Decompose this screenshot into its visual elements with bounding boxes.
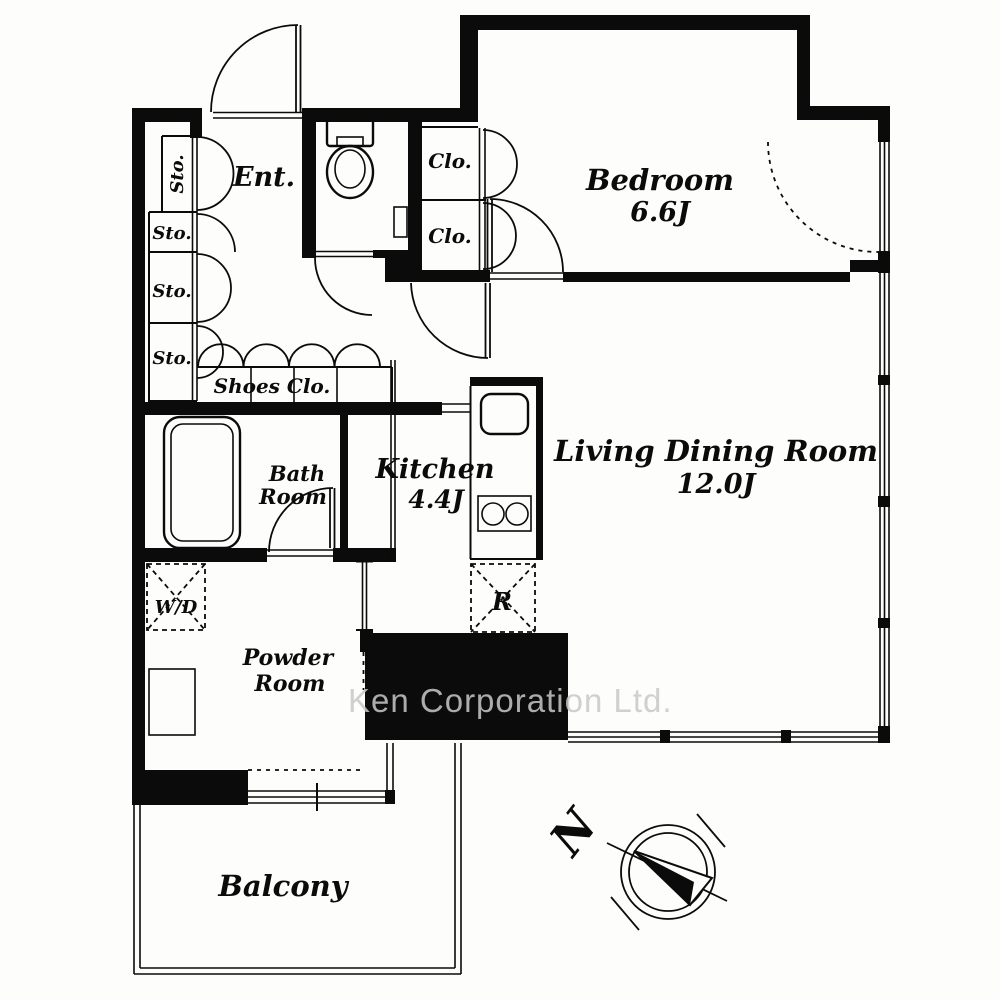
kitchen-sink-icon bbox=[481, 394, 528, 434]
kitchen-size: 4.4J bbox=[408, 485, 465, 514]
entrance-door bbox=[211, 25, 301, 112]
floor-plan-drawing: N Ent. Sto. Sto. Sto. Sto. Shoes Clo. Cl… bbox=[0, 0, 1000, 1000]
entrance-label: Ent. bbox=[232, 162, 295, 193]
closet-label-1: Clo. bbox=[428, 149, 471, 173]
shoes-closet-label: Shoes Clo. bbox=[214, 374, 331, 398]
closet-label-2: Clo. bbox=[428, 224, 471, 248]
corner-window bbox=[387, 743, 393, 790]
living-dining-label: Living Dining Room bbox=[553, 434, 878, 468]
toilet-door bbox=[315, 258, 372, 315]
bath-label-line1: Bath bbox=[268, 461, 325, 486]
kitchen-label: Kitchen bbox=[374, 454, 494, 485]
compass-rose: N bbox=[538, 797, 727, 930]
toilet-icon bbox=[327, 119, 407, 237]
vanity-icon bbox=[149, 669, 195, 735]
storage-label-4: Sto. bbox=[152, 348, 191, 369]
storage-label-3: Sto. bbox=[152, 281, 191, 302]
shoes-closet-folding-doors bbox=[198, 344, 380, 367]
bathtub-icon bbox=[164, 417, 240, 548]
partitions bbox=[134, 113, 563, 975]
north-label: N bbox=[538, 797, 609, 866]
powder-label-line1: Powder bbox=[242, 645, 335, 671]
south-window bbox=[568, 730, 878, 743]
washer-dryer-label: W/D bbox=[155, 597, 198, 618]
powder-balcony-window bbox=[248, 783, 385, 811]
balcony-label: Balcony bbox=[217, 869, 349, 903]
living-hall-door bbox=[411, 283, 490, 358]
living-dining-size: 12.0J bbox=[677, 469, 758, 500]
bedroom-balcony-door-swing bbox=[768, 142, 878, 252]
storage-doors bbox=[197, 137, 235, 378]
powder-label-line2: Room bbox=[254, 671, 326, 697]
powder-sliding-door bbox=[356, 562, 373, 631]
bath-label-line2: Room bbox=[258, 484, 327, 509]
storage-label-1: Sto. bbox=[167, 154, 188, 193]
bedroom-door bbox=[488, 199, 564, 272]
storage-label-2: Sto. bbox=[152, 223, 191, 244]
east-window bbox=[880, 142, 889, 726]
bedroom-label: Bedroom bbox=[585, 163, 734, 197]
floor-plan: N Ent. Sto. Sto. Sto. Sto. Shoes Clo. Cl… bbox=[0, 0, 1000, 1000]
bedroom-size: 6.6J bbox=[630, 197, 692, 228]
needle-fill bbox=[634, 851, 694, 905]
refrigerator-label: R bbox=[491, 587, 512, 616]
labels: Ent. Sto. Sto. Sto. Sto. Shoes Clo. Clo.… bbox=[152, 149, 878, 903]
watermark: Ken Corporation Ltd. bbox=[348, 682, 673, 719]
stove-icon bbox=[478, 496, 531, 531]
